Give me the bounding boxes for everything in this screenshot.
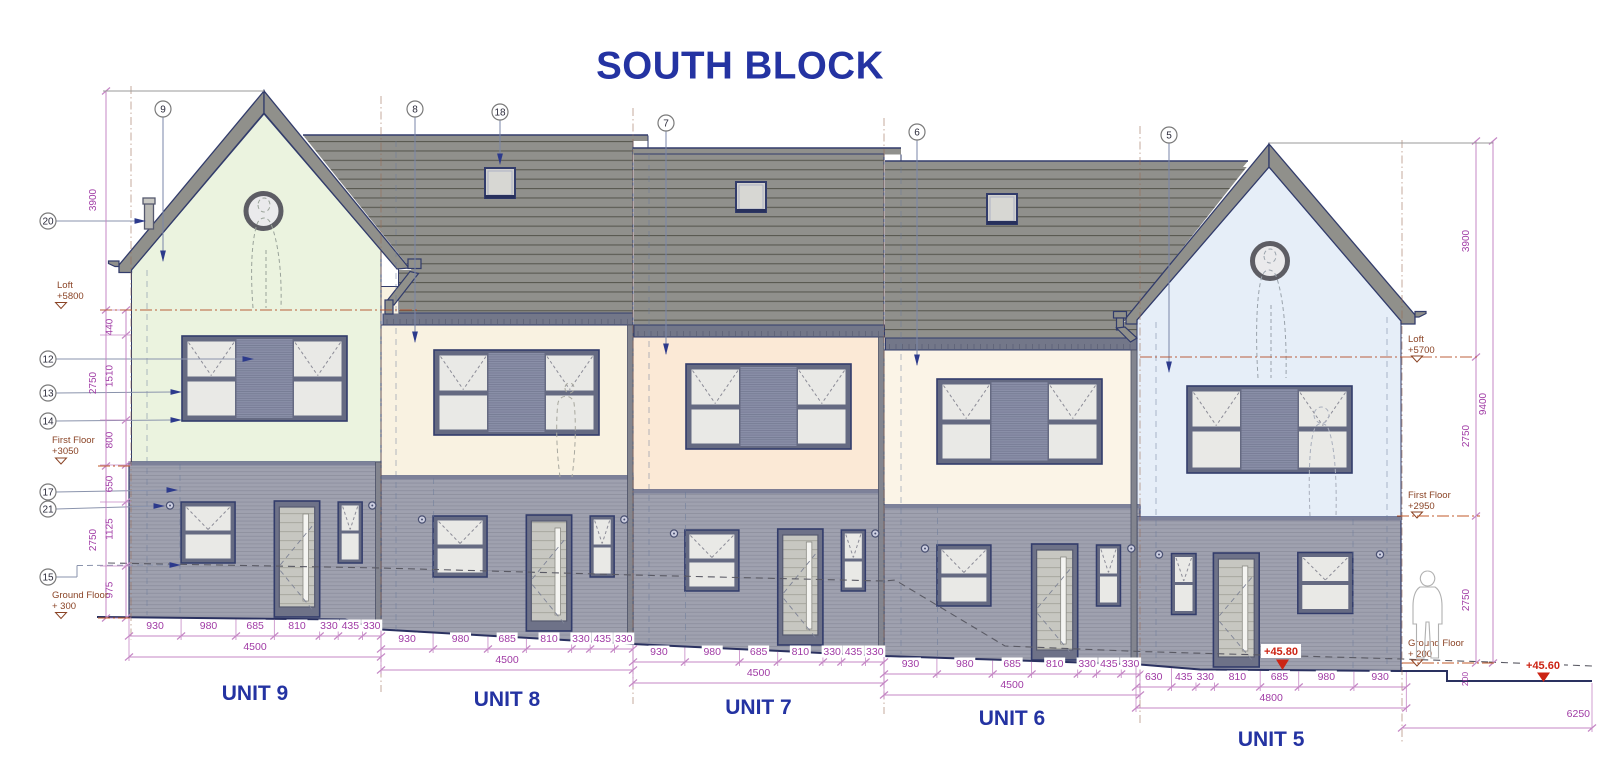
svg-text:330: 330 (615, 633, 633, 645)
svg-text:2750: 2750 (1461, 588, 1472, 611)
svg-text:435: 435 (1175, 671, 1193, 683)
svg-text:1125: 1125 (105, 518, 116, 540)
svg-text:685: 685 (1271, 671, 1289, 683)
svg-text:330: 330 (823, 646, 841, 658)
svg-text:1510: 1510 (105, 364, 116, 387)
svg-text:2750: 2750 (88, 371, 99, 394)
svg-text:+5700: +5700 (1408, 345, 1435, 356)
svg-text:685: 685 (1003, 658, 1021, 670)
svg-text:+5800: +5800 (57, 291, 84, 302)
svg-text:435: 435 (342, 620, 360, 632)
svg-text:12: 12 (42, 354, 54, 365)
svg-text:685: 685 (246, 620, 264, 632)
svg-text:930: 930 (398, 633, 416, 645)
svg-text:810: 810 (1229, 671, 1247, 683)
svg-text:First Floor: First Floor (52, 435, 95, 446)
svg-text:330: 330 (1196, 671, 1214, 683)
svg-text:8: 8 (412, 104, 418, 115)
svg-text:810: 810 (792, 646, 810, 658)
svg-text:+2950: +2950 (1408, 501, 1435, 512)
svg-text:5: 5 (1166, 130, 1172, 141)
svg-text:First Floor: First Floor (1408, 490, 1451, 501)
svg-text:800: 800 (105, 431, 116, 448)
svg-text:2750: 2750 (1461, 424, 1472, 447)
svg-text:14: 14 (42, 416, 54, 427)
svg-text:Ground Floor: Ground Floor (52, 590, 108, 601)
svg-text:330: 330 (866, 646, 884, 658)
svg-text:930: 930 (1371, 671, 1389, 683)
svg-text:UNIT 7: UNIT 7 (725, 696, 792, 719)
svg-text:4800: 4800 (1259, 692, 1283, 704)
svg-text:435: 435 (845, 646, 863, 658)
svg-text:4500: 4500 (1000, 679, 1024, 691)
svg-text:20: 20 (42, 216, 54, 227)
svg-text:435: 435 (594, 633, 612, 645)
svg-text:330: 330 (1122, 658, 1140, 670)
svg-text:330: 330 (363, 620, 381, 632)
svg-text:980: 980 (452, 633, 470, 645)
svg-text:650: 650 (105, 475, 116, 492)
svg-text:200: 200 (1460, 672, 1470, 686)
svg-text:330: 330 (320, 620, 338, 632)
svg-text:+45.80: +45.80 (1264, 646, 1298, 658)
svg-text:13: 13 (42, 388, 54, 399)
svg-text:9: 9 (160, 104, 166, 115)
svg-text:3900: 3900 (88, 188, 99, 211)
svg-text:930: 930 (902, 658, 920, 670)
svg-text:6250: 6250 (1567, 708, 1591, 720)
svg-text:UNIT 6: UNIT 6 (979, 707, 1046, 730)
svg-text:980: 980 (1318, 671, 1336, 683)
svg-text:3900: 3900 (1461, 229, 1472, 252)
svg-text:SOUTH BLOCK: SOUTH BLOCK (596, 45, 884, 88)
svg-text:440: 440 (105, 318, 116, 335)
svg-text:Loft: Loft (1408, 334, 1424, 345)
svg-text:685: 685 (750, 646, 768, 658)
svg-text:435: 435 (1100, 658, 1118, 670)
svg-text:930: 930 (650, 646, 668, 658)
svg-text:980: 980 (956, 658, 974, 670)
svg-text:330: 330 (572, 633, 590, 645)
svg-text:UNIT 8: UNIT 8 (474, 688, 541, 711)
svg-text:2750: 2750 (88, 528, 99, 551)
svg-text:7: 7 (663, 118, 669, 129)
svg-text:4500: 4500 (243, 641, 267, 653)
svg-text:980: 980 (200, 620, 218, 632)
svg-text:+ 300: + 300 (52, 601, 76, 612)
svg-text:810: 810 (540, 633, 558, 645)
svg-text:18: 18 (494, 107, 506, 118)
svg-text:17: 17 (42, 487, 54, 498)
svg-text:9400: 9400 (1478, 392, 1489, 415)
svg-text:930: 930 (146, 620, 164, 632)
svg-text:980: 980 (703, 646, 721, 658)
svg-text:810: 810 (1046, 658, 1064, 670)
svg-text:4500: 4500 (495, 654, 519, 666)
svg-text:Loft: Loft (57, 280, 73, 291)
svg-text:+3050: +3050 (52, 446, 79, 457)
svg-text:330: 330 (1078, 658, 1096, 670)
svg-text:15: 15 (42, 572, 54, 583)
svg-text:810: 810 (288, 620, 306, 632)
svg-text:UNIT 9: UNIT 9 (222, 682, 289, 705)
svg-text:21: 21 (42, 504, 54, 515)
svg-text:6: 6 (914, 127, 920, 138)
svg-text:4500: 4500 (747, 667, 771, 679)
svg-text:+45.60: +45.60 (1526, 660, 1560, 672)
svg-text:UNIT 5: UNIT 5 (1238, 728, 1305, 751)
svg-text:630: 630 (1145, 671, 1163, 683)
svg-text:685: 685 (498, 633, 516, 645)
